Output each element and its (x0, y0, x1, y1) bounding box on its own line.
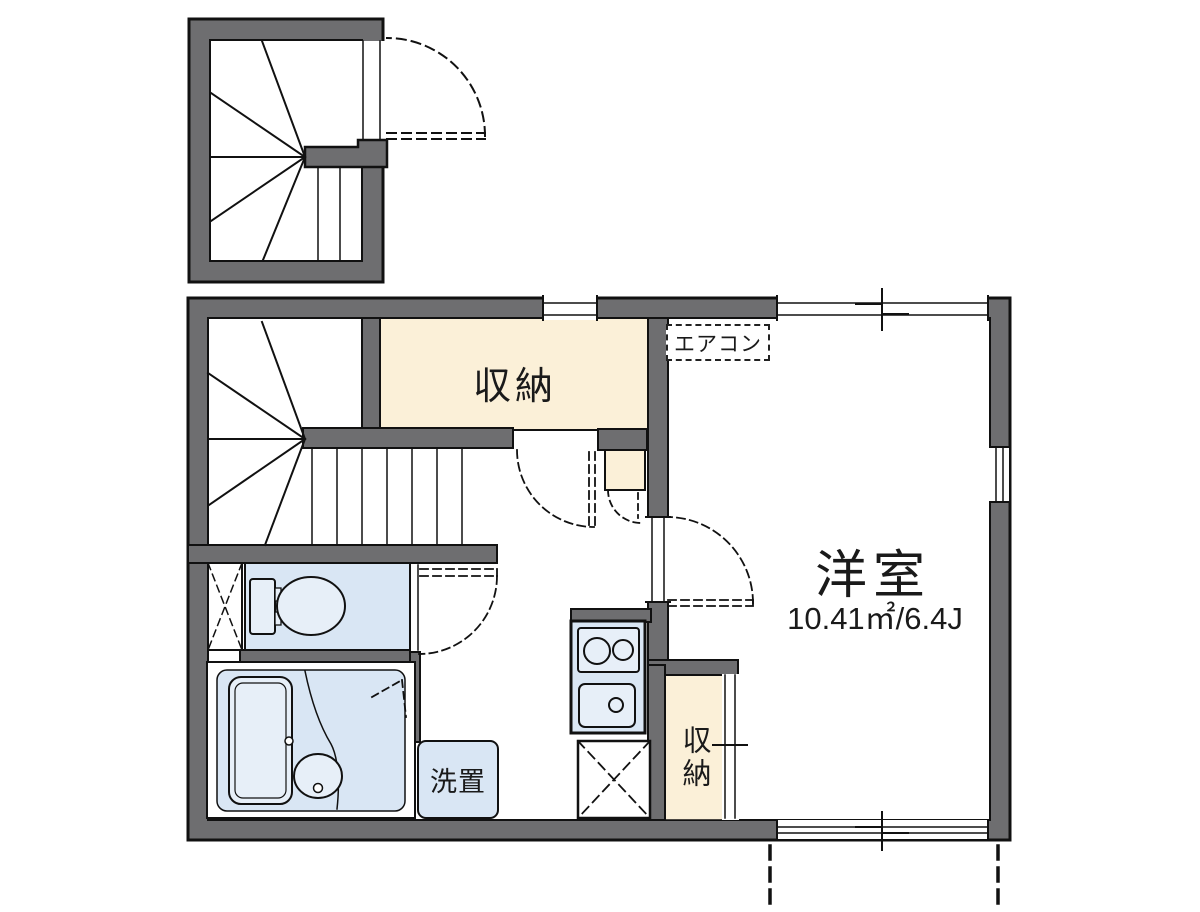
wall-stair-storage (362, 318, 380, 430)
toilet-room (245, 563, 410, 650)
basin-drain (314, 784, 323, 793)
utility-box (605, 450, 645, 490)
kitchen-unit (571, 621, 645, 733)
bathtub-faucet (285, 737, 293, 745)
toilet-tank (250, 579, 275, 634)
storage-top-label: 収納 (420, 355, 610, 410)
toilet-bowl (277, 577, 345, 635)
refrigerator-space (578, 741, 650, 818)
room-area-label: 10.41㎡/6.4J (715, 593, 1035, 638)
wall-stair-bottom (188, 545, 497, 563)
bathtub (229, 677, 292, 804)
floor-plan-drawing (0, 0, 1200, 912)
kitchen-sink (579, 684, 635, 727)
storage-bottom-label: 収納 (670, 697, 718, 819)
bathroom (207, 662, 415, 818)
wall-room-divider-upper (648, 318, 668, 518)
stair-detail-door-swing (387, 38, 485, 139)
balcony-boundary-dashes (770, 846, 998, 908)
floor-plan-page: 収納 エアコン 洋室 10.41㎡/6.4J 洗置 収納 (0, 0, 1200, 912)
window-right (989, 447, 1009, 502)
window-top-small (543, 295, 597, 320)
pipe-shaft (208, 563, 242, 650)
aircon-label: エアコン (666, 324, 770, 361)
stair-detail-box (189, 19, 485, 282)
opening-western-room-door (646, 517, 670, 603)
stove-panel (578, 628, 639, 672)
wall-stair-handrail (303, 428, 513, 448)
wall-opening-right-block (598, 429, 647, 450)
laundry-label: 洗置 (418, 741, 498, 818)
